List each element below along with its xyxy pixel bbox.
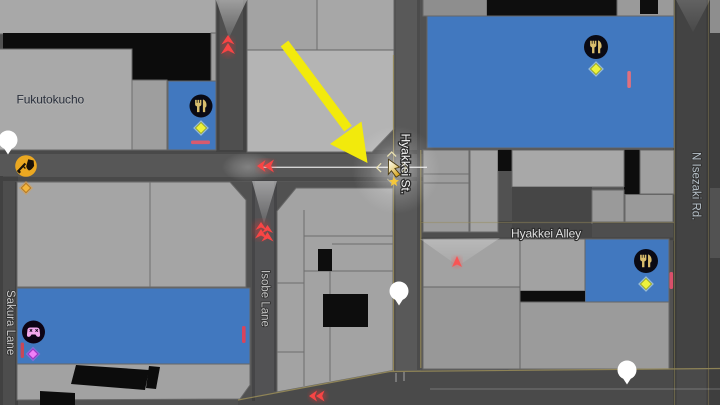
svg-text:Sakura Lane: Sakura Lane <box>4 290 16 355</box>
svg-text:Fukutokucho: Fukutokucho <box>17 93 85 107</box>
svg-text:Isobe Lane: Isobe Lane <box>259 270 271 327</box>
svg-text:Hyakkei St.: Hyakkei St. <box>399 134 413 195</box>
svg-text:Hyakkei Alley: Hyakkei Alley <box>511 227 581 241</box>
svg-text:N Isezaki Rd.: N Isezaki Rd. <box>690 152 702 220</box>
